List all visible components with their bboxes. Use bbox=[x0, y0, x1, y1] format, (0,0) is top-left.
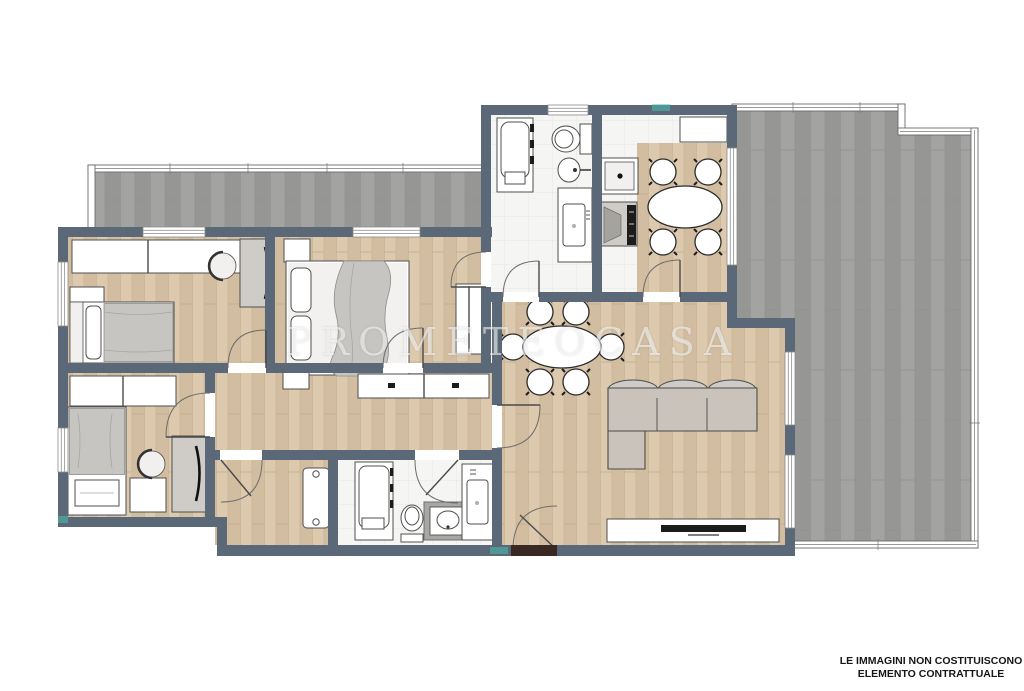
radiator bbox=[303, 468, 329, 528]
pillow bbox=[291, 268, 311, 312]
window bbox=[548, 105, 588, 115]
pillow bbox=[291, 316, 311, 360]
bathtub bbox=[497, 118, 534, 192]
kitchen-cabinet bbox=[680, 117, 727, 142]
single-bed bbox=[68, 407, 126, 515]
plan-marker bbox=[490, 547, 508, 554]
tv bbox=[661, 525, 746, 532]
window bbox=[727, 148, 737, 265]
window bbox=[143, 227, 205, 237]
plan-marker bbox=[58, 516, 68, 523]
window bbox=[58, 428, 68, 472]
disclaimer-line2: ELEMENTO CONTRATTUALE bbox=[838, 668, 1024, 681]
toilet bbox=[401, 505, 423, 542]
tv-cabinet bbox=[607, 519, 779, 542]
shower bbox=[355, 462, 394, 540]
plan-marker bbox=[652, 104, 670, 111]
window bbox=[785, 455, 795, 528]
double-bed bbox=[286, 261, 409, 376]
toilet bbox=[552, 124, 592, 154]
window bbox=[58, 262, 68, 326]
nightstand bbox=[284, 239, 310, 262]
disclaimer-line1: LE IMMAGINI NON COSTITUISCONO bbox=[838, 655, 1024, 668]
window bbox=[785, 352, 795, 425]
blanket bbox=[330, 261, 390, 376]
disclaimer: LE IMMAGINI NON COSTITUISCONO ELEMENTO C… bbox=[838, 655, 1024, 680]
floor-plan-canvas: PROMETEOCASA LE IMMAGINI NON COSTITUISCO… bbox=[0, 0, 1024, 691]
wardrobe bbox=[456, 284, 482, 354]
nightstand bbox=[130, 478, 166, 512]
sink-vanity bbox=[462, 464, 494, 540]
stove bbox=[600, 202, 637, 246]
window bbox=[353, 227, 420, 237]
single-bed bbox=[70, 302, 174, 363]
terrace-strip-floor bbox=[95, 172, 483, 230]
floor-plan bbox=[0, 0, 1024, 691]
sink-vanity bbox=[558, 188, 592, 262]
